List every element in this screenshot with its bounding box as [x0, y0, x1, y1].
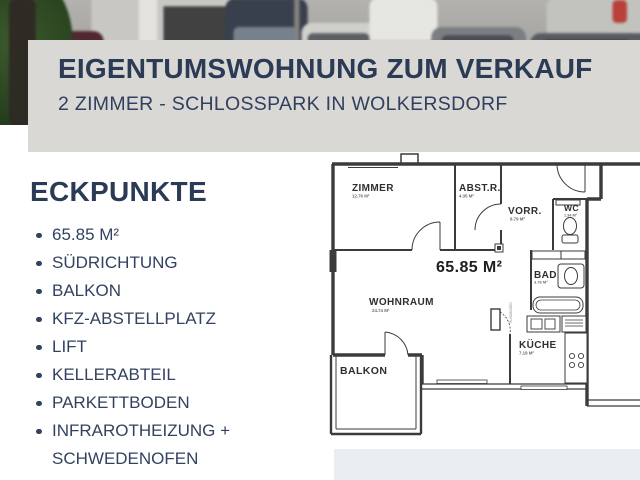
floor-plan: ZIMMER 12.76 M² ABST.R. 4.35 M² VORR. 8.… — [325, 150, 640, 450]
room-area-abstellraum: 4.35 M² — [459, 194, 474, 199]
room-label-vorraum: VORR. — [508, 206, 542, 217]
window-sill-kitchen — [521, 386, 567, 390]
room-label-zimmer: ZIMMER — [352, 183, 394, 194]
list-item-text: KELLERABTEIL — [52, 365, 176, 384]
title-banner: EIGENTUMSWOHNUNG ZUM VERKAUF 2 ZIMMER - … — [28, 40, 640, 152]
cabinet-row — [532, 251, 585, 259]
room-area-bad: 3.76 M² — [534, 280, 548, 285]
list-item-area: 65.85 M² — [32, 221, 300, 249]
list-item-orientation: SÜDRICHTUNG — [32, 249, 300, 277]
kitchen-counter-column — [565, 333, 587, 383]
bath-sink-icon — [565, 268, 578, 285]
list-item-text: SÜDRICHTUNG — [52, 253, 178, 272]
red-scooter — [613, 0, 627, 23]
toilet-tank — [562, 235, 578, 243]
door-entrance — [557, 164, 585, 192]
list-item-lift: LIFT — [32, 333, 300, 361]
listing-flyer: EIGENTUMSWOHNUNG ZUM VERKAUF 2 ZIMMER - … — [0, 0, 640, 480]
list-item-parking: KFZ-ABSTELLPLATZ — [32, 305, 300, 333]
plan-footer-band — [334, 449, 640, 480]
window-sill-livingroom — [437, 380, 487, 384]
list-item-text: LIFT — [52, 337, 87, 356]
door-zimmer — [412, 222, 440, 250]
room-area-wc: 1.34 M² — [564, 214, 578, 218]
list-item-text: PARKETTBODEN — [52, 393, 190, 412]
room-area-vorraum: 8.79 M² — [510, 217, 525, 222]
keypoints-list: 65.85 M² SÜDRICHTUNG BALKON KFZ-ABSTELLP… — [32, 221, 300, 473]
room-area-wohnraum: 24.74 M² — [372, 308, 390, 313]
list-item-text: 65.85 M² — [52, 225, 119, 244]
page-subtitle: 2 ZIMMER - SCHLOSSPARK IN WOLKERSDORF — [58, 93, 640, 116]
sink-basin-left — [531, 319, 542, 329]
room-area-kueche: 7.19 M² — [519, 351, 534, 356]
room-area-zimmer: 12.76 M² — [352, 194, 370, 199]
threshold-box-fill — [497, 246, 501, 250]
list-item-balcony: BALKON — [32, 277, 300, 305]
room-label-balkon: BALKON — [340, 365, 387, 377]
room-label-abstellraum: ABST.R. — [459, 183, 501, 194]
list-item-cellar: KELLERABTEIL — [32, 361, 300, 389]
sink-basin-right — [545, 319, 555, 329]
page-title: EIGENTUMSWOHNUNG ZUM VERKAUF — [58, 53, 640, 85]
wall-block-left — [330, 250, 337, 272]
arch-annotation: RUNDBOGEN — [509, 302, 513, 323]
list-item-text: KFZ-ABSTELLPLATZ — [52, 309, 216, 328]
list-item-parquet: PARKETTBODEN — [32, 389, 300, 417]
total-area-label: 65.85 M² — [436, 259, 502, 276]
pillar — [491, 309, 500, 330]
door-balcony — [385, 332, 408, 355]
room-label-kueche: KÜCHE — [519, 338, 557, 351]
list-item-text: INFRAROTHEIZUNG + SCHWEDENOFEN — [52, 421, 230, 468]
list-item-heating: INFRAROTHEIZUNG + SCHWEDENOFEN — [32, 417, 300, 473]
door-abstellraum — [475, 204, 501, 230]
toilet-icon — [564, 218, 577, 235]
dishwasher-icon — [562, 316, 586, 332]
room-label-wohnraum: WOHNRAUM — [369, 297, 434, 308]
keypoints-heading: ECKPUNKTE — [30, 176, 207, 208]
bathtub-inner — [536, 300, 580, 310]
list-item-text: BALKON — [52, 281, 121, 300]
room-label-wc: WC — [564, 203, 579, 213]
